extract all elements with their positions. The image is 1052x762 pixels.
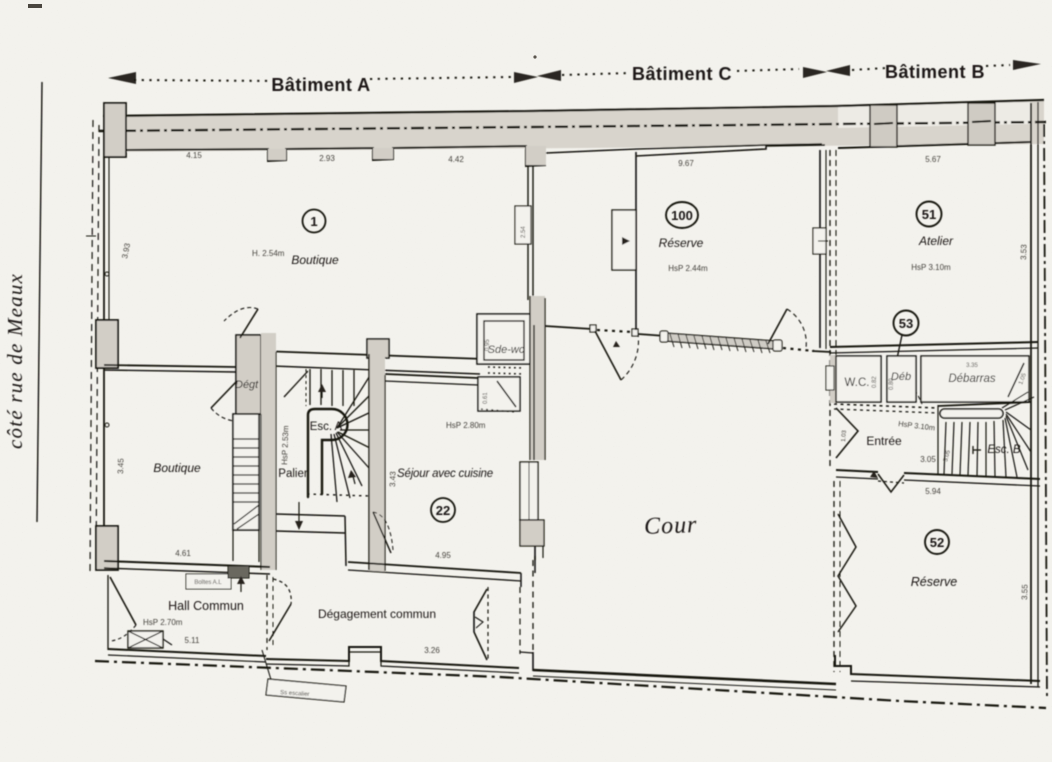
svg-text:5.11: 5.11 [185,636,201,645]
svg-text:Débarras: Débarras [948,373,996,385]
svg-text:Réserve: Réserve [659,236,704,250]
svg-text:Sde-wc: Sde-wc [488,344,525,356]
svg-text:4.42: 4.42 [448,155,464,164]
svg-text:Cour: Cour [644,512,698,540]
svg-text:100: 100 [671,208,693,223]
svg-text:9.67: 9.67 [678,159,694,168]
svg-text:5.94: 5.94 [925,487,941,496]
svg-text:Séjour avec cuisine: Séjour avec cuisine [397,468,493,480]
svg-text:Dégagement commun: Dégagement commun [318,607,436,621]
svg-text:Hall Commun: Hall Commun [168,599,244,613]
svg-text:Dégt: Dégt [235,379,259,391]
svg-text:3.53: 3.53 [1019,244,1029,260]
svg-text:3.05: 3.05 [920,455,936,464]
svg-text:Réserve: Réserve [911,575,958,589]
svg-text:3.35: 3.35 [966,363,978,369]
svg-text:Palier: Palier [278,468,308,480]
svg-text:0.82: 0.82 [872,376,878,388]
svg-text:Boutique: Boutique [291,253,339,267]
svg-text:Entrée: Entrée [866,434,902,448]
svg-text:HsP 2.53m: HsP 2.53m [280,425,290,465]
svg-text:0.61: 0.61 [483,392,489,404]
svg-text:53: 53 [899,316,913,331]
svg-text:4.15: 4.15 [186,151,202,160]
svg-text:0.80: 0.80 [889,378,895,390]
svg-text:Bâtiment C: Bâtiment C [632,64,732,84]
svg-text:Boîtes A.L: Boîtes A.L [194,580,222,586]
svg-text:4.61: 4.61 [175,549,191,558]
svg-text:côté rue de Meaux: côté rue de Meaux [3,273,27,449]
svg-text:0.95: 0.95 [485,339,491,351]
svg-text:52: 52 [930,535,944,550]
svg-text:3.55: 3.55 [1020,584,1030,600]
svg-text:Bâtiment B: Bâtiment B [885,62,985,82]
svg-text:HsP 2.80m: HsP 2.80m [446,421,486,430]
svg-text:2.54: 2.54 [521,226,527,238]
svg-text:3.43: 3.43 [388,471,398,487]
svg-text:51: 51 [922,207,936,222]
svg-text:2.93: 2.93 [319,154,335,163]
svg-text:HsP 2.70m: HsP 2.70m [143,618,183,627]
svg-text:1: 1 [310,214,317,229]
svg-text:Esc. A: Esc. A [310,421,343,433]
svg-text:H. 2.54m: H. 2.54m [252,249,285,258]
svg-text:W.C.: W.C. [845,377,870,389]
svg-text:1.03: 1.03 [841,429,848,442]
svg-text:22: 22 [436,503,450,518]
svg-text:4.95: 4.95 [435,551,451,560]
svg-text:HsP 2.44m: HsP 2.44m [668,264,708,273]
svg-text:Atelier: Atelier [918,234,954,248]
svg-text:HsP 3.10m: HsP 3.10m [911,263,951,272]
svg-text:Boutique: Boutique [153,461,201,475]
svg-text:Esc. B: Esc. B [987,444,1021,456]
svg-text:3.26: 3.26 [424,646,440,655]
svg-text:3.45: 3.45 [116,458,126,474]
svg-text:Bâtiment A: Bâtiment A [271,75,370,95]
svg-text:5.67: 5.67 [925,155,941,164]
